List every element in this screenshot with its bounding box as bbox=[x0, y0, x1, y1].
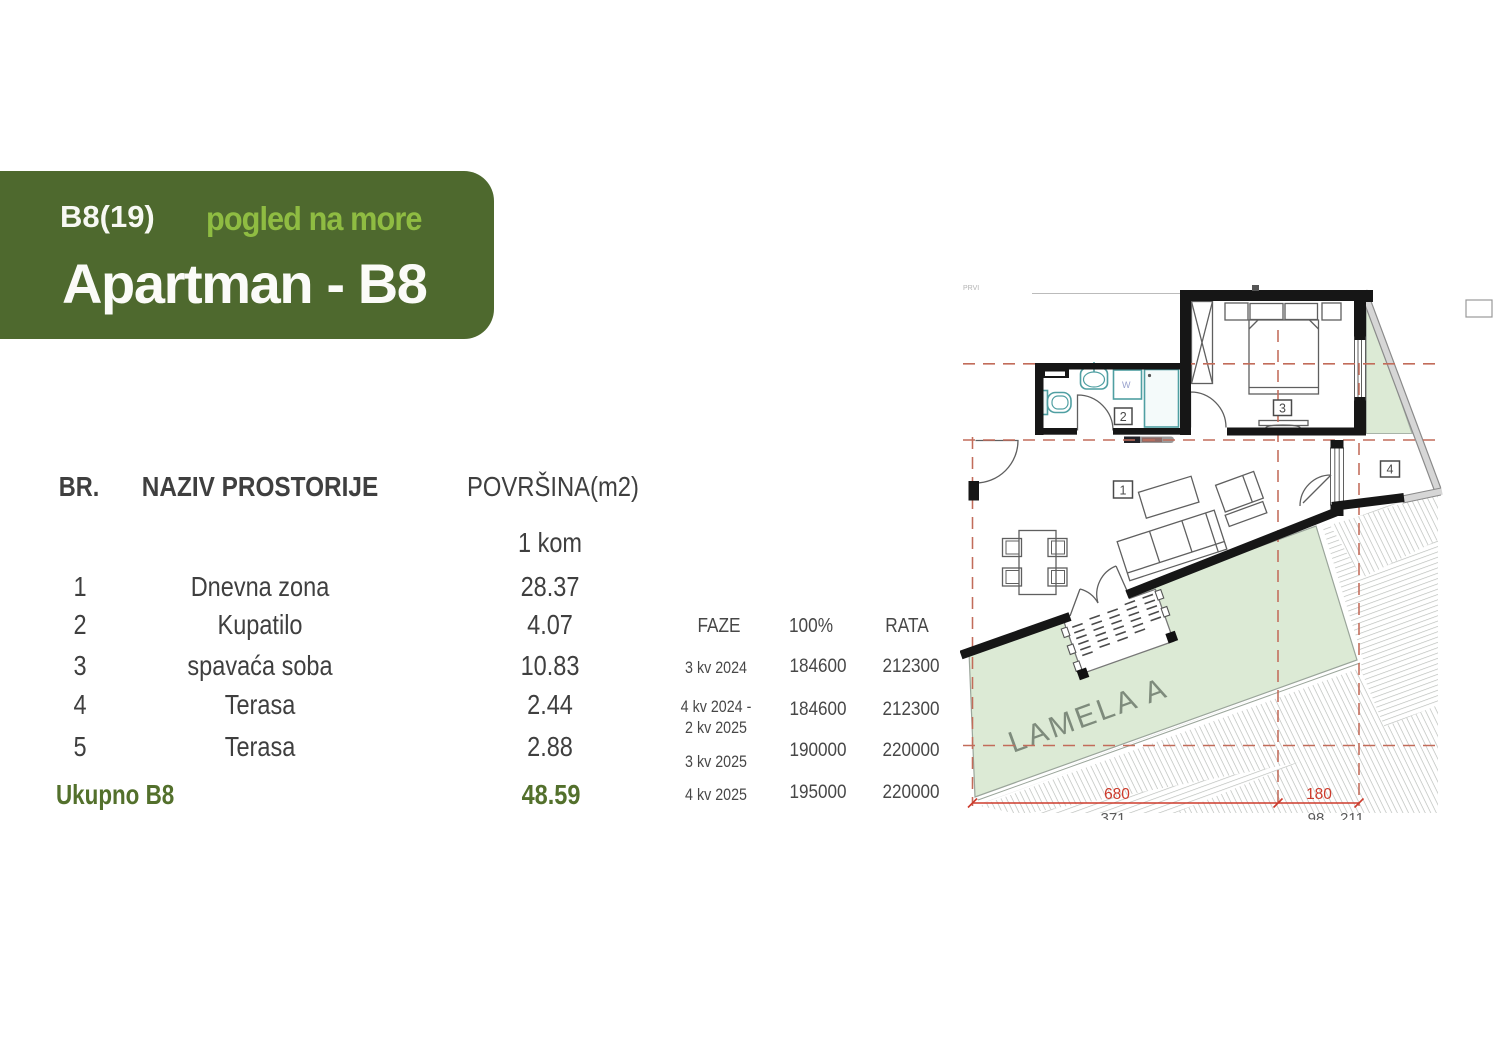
svg-text:98: 98 bbox=[1308, 810, 1325, 820]
svg-text:680: 680 bbox=[1104, 786, 1130, 803]
svg-text:3: 3 bbox=[1279, 402, 1286, 416]
svg-text:2: 2 bbox=[1120, 410, 1127, 424]
svg-text:1: 1 bbox=[1120, 484, 1127, 498]
svg-text:PRVI: PRVI bbox=[963, 285, 979, 292]
svg-text:W: W bbox=[1122, 380, 1131, 390]
svg-text:180: 180 bbox=[1306, 786, 1332, 803]
svg-text:371: 371 bbox=[1100, 810, 1125, 820]
svg-text:211: 211 bbox=[1340, 810, 1364, 820]
svg-text:4: 4 bbox=[1387, 463, 1394, 477]
